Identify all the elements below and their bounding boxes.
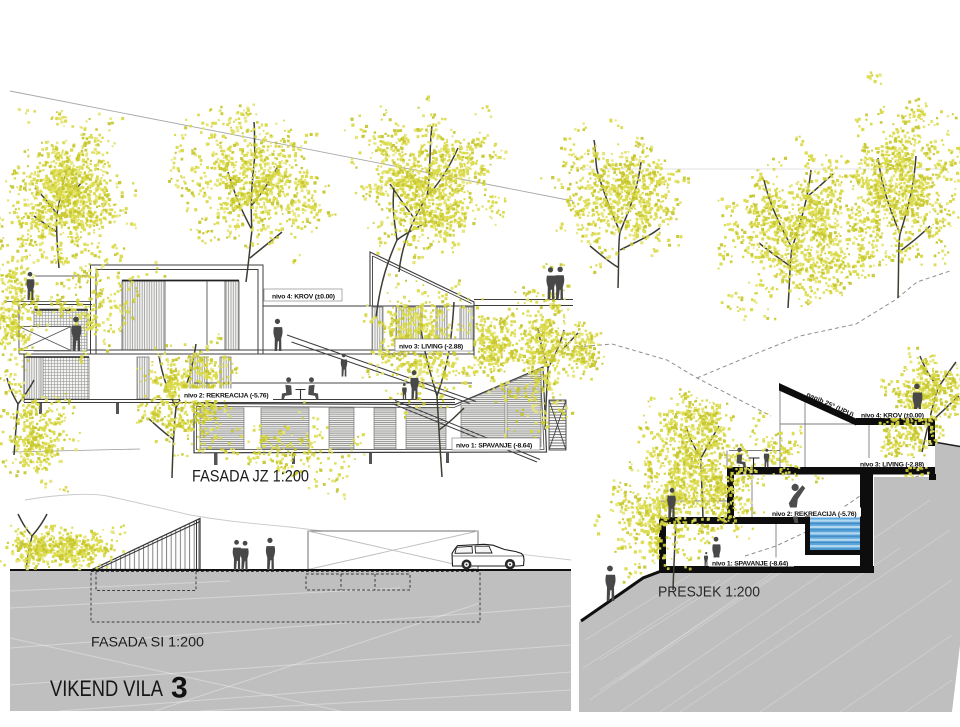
svg-text:nivo 4: KROV (±0.00): nivo 4: KROV (±0.00): [861, 412, 924, 419]
svg-text:3: 3: [171, 672, 188, 705]
svg-text:nivo 3: LIVING (-2.88): nivo 3: LIVING (-2.88): [860, 461, 924, 468]
svg-text:VIKEND VILA: VIKEND VILA: [50, 676, 163, 701]
svg-text:FASADA SI 1:200: FASADA SI 1:200: [91, 634, 204, 650]
svg-text:nivo 2: REKREACIJA (-5.76): nivo 2: REKREACIJA (-5.76): [772, 511, 856, 518]
svg-text:nivo 2: REKREACIJA (-5.76): nivo 2: REKREACIJA (-5.76): [184, 393, 268, 400]
svg-text:PRESJEK 1:200: PRESJEK 1:200: [658, 584, 760, 601]
svg-text:FASADA JZ 1:200: FASADA JZ 1:200: [192, 468, 309, 486]
svg-text:nivo 4: KROV (±0.00): nivo 4: KROV (±0.00): [272, 294, 335, 301]
svg-text:nivo 1: SPAVANJE (-8.64): nivo 1: SPAVANJE (-8.64): [456, 443, 532, 450]
svg-text:nivo 3: LIVING (-2.88): nivo 3: LIVING (-2.88): [399, 344, 463, 351]
svg-text:nivo 1: SPAVANJE (-8.64): nivo 1: SPAVANJE (-8.64): [712, 561, 788, 568]
